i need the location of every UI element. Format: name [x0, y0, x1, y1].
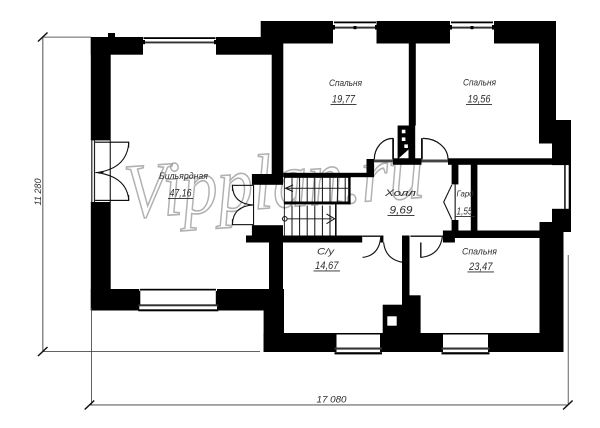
svg-text:19,77: 19,77 — [332, 94, 356, 106]
svg-text:1,55: 1,55 — [457, 206, 473, 218]
svg-text:Бильярдная: Бильярдная — [159, 171, 208, 181]
svg-text:23,47: 23,47 — [468, 261, 493, 273]
svg-text:14,67: 14,67 — [315, 260, 339, 272]
svg-text:11 280: 11 280 — [33, 179, 43, 206]
svg-text:47,16: 47,16 — [170, 188, 193, 200]
svg-text:Спальня: Спальня — [463, 78, 496, 88]
svg-text:С/у: С/у — [317, 247, 335, 257]
svg-text:9,69: 9,69 — [390, 205, 413, 217]
svg-text:Спальня: Спальня — [329, 78, 362, 88]
svg-text:19,56: 19,56 — [468, 94, 492, 106]
svg-text:Гард: Гард — [457, 189, 474, 199]
svg-text:17 080: 17 080 — [317, 395, 347, 405]
svg-text:Холл: Холл — [384, 188, 417, 199]
svg-text:Спальня: Спальня — [462, 247, 497, 257]
